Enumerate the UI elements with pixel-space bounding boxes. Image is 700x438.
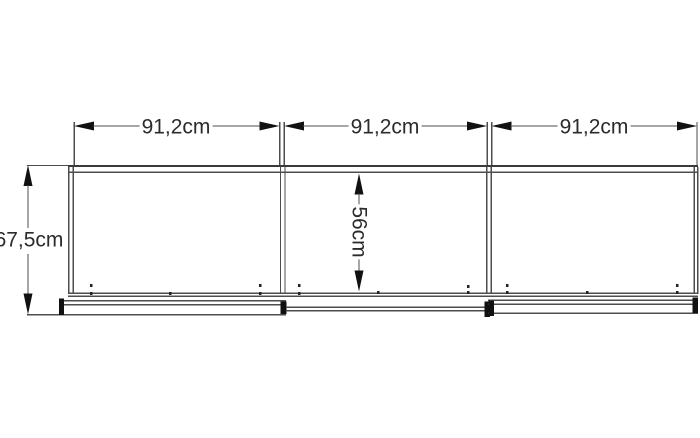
extension-line-top — [27, 165, 68, 166]
arrow-left-icon — [284, 122, 304, 131]
door-bottom-lower-line — [68, 296, 698, 297]
right-edge-inner-line — [693, 167, 694, 294]
screw-dot — [298, 292, 300, 295]
dimension-line — [623, 125, 677, 126]
back-rail-top-line — [286, 307, 488, 308]
left-track-mid-line — [60, 304, 286, 305]
screw-dot — [467, 285, 469, 288]
arrow-left-icon — [492, 122, 512, 131]
top-panel-inner-line — [68, 172, 698, 173]
arrow-right-icon — [677, 122, 697, 131]
left-edge-inner-line — [73, 167, 74, 294]
arrow-down-icon — [355, 271, 364, 292]
dimension-drawing: 91,2cm 91,2cm 91,2cm 67,5cm 56cm — [0, 0, 700, 438]
arrow-up-icon — [355, 174, 364, 195]
divider-1-left-line — [280, 167, 281, 294]
left-track-bottom-line — [60, 314, 286, 316]
right-track-bottom-line — [488, 313, 698, 315]
arrow-right-icon — [467, 122, 487, 131]
door-bottom-upper-line — [68, 293, 698, 294]
extension-line — [74, 122, 75, 165]
screw-dot — [676, 284, 678, 287]
section-width-label-2: 91,2cm — [349, 117, 422, 138]
extension-line — [696, 122, 697, 165]
screw-dot — [90, 292, 92, 295]
bottom-tracks — [59, 298, 698, 318]
right-track-top-line — [488, 300, 698, 301]
dimension-line — [27, 185, 28, 228]
dimension-line — [414, 125, 468, 126]
extension-line — [491, 122, 492, 165]
screw-dot — [676, 291, 678, 294]
screw-dot — [259, 284, 261, 287]
left-edge-outer-line — [68, 167, 69, 294]
screw-dot — [586, 291, 588, 294]
left-track-roller-right — [280, 302, 286, 315]
section-width-label-1: 91,2cm — [140, 117, 213, 138]
screw-dot — [90, 284, 92, 287]
section-width-label-3: 91,2cm — [558, 117, 631, 138]
extension-line — [284, 122, 285, 165]
screw-dot — [377, 291, 379, 294]
screw-dot — [169, 292, 171, 295]
door-dividers — [280, 167, 492, 294]
right-track-roller-right — [693, 298, 699, 314]
top-panel-outer-line — [68, 165, 698, 167]
dimension-line — [27, 254, 28, 295]
arrow-left-icon — [74, 122, 94, 131]
left-track-top-line — [60, 300, 286, 301]
dimension-line — [206, 125, 260, 126]
screw-dot — [506, 284, 508, 287]
back-rail-bottom-line — [286, 310, 488, 311]
screw-dot — [298, 284, 300, 287]
left-track-roller-left — [59, 299, 64, 316]
divider-1-right-line — [284, 167, 285, 294]
right-edge-outer-line — [697, 167, 698, 294]
right-track-mid-line — [488, 304, 698, 305]
screw-dot — [467, 291, 469, 294]
dimension-line — [511, 125, 565, 126]
right-track-roller-left — [488, 301, 494, 317]
screw-dot — [506, 291, 508, 294]
divider-2-right-line — [491, 167, 492, 294]
extension-line — [487, 122, 488, 165]
inner-height-label: 56cm — [349, 204, 370, 259]
extension-line — [279, 122, 280, 165]
arrow-down-icon — [24, 294, 33, 315]
arrow-up-icon — [24, 165, 33, 186]
arrow-right-icon — [260, 122, 280, 131]
screw-dot — [259, 292, 261, 295]
cabinet-outline — [68, 165, 698, 297]
divider-2-left-line — [486, 167, 487, 294]
total-height-label: 67,5cm — [0, 230, 65, 251]
extension-line-bottom — [27, 314, 61, 315]
